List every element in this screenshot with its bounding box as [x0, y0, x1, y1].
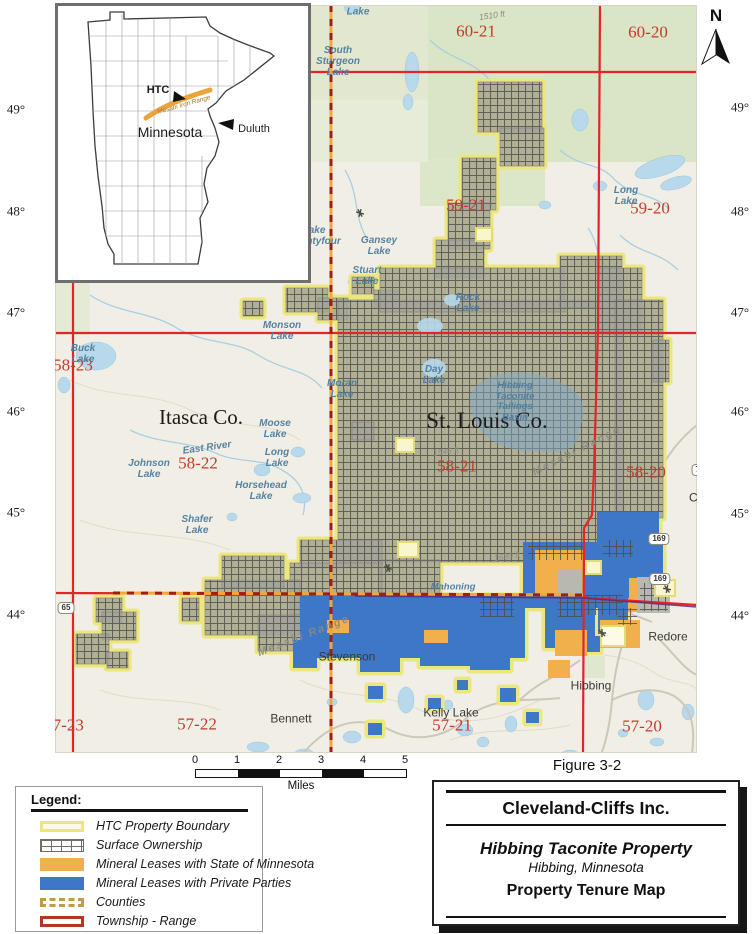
- figure-number-label: Figure 3-2: [432, 757, 742, 774]
- legend-header-rule: [31, 809, 248, 812]
- scale-tick: 4: [360, 754, 366, 766]
- scale-unit-label: Miles: [288, 780, 315, 792]
- scale-bar-segments: [195, 769, 407, 778]
- north-arrow-icon: [694, 26, 738, 66]
- latitude-label-right: 47°: [731, 306, 749, 321]
- latitude-label-left: 48°: [7, 205, 25, 220]
- latitude-label-right: 49°: [731, 101, 749, 116]
- legend-item-label: Mineral Leases with Private Parties: [96, 876, 291, 890]
- legend-box: Legend: HTC Property BoundarySurface Own…: [15, 786, 263, 932]
- legend-item-label: Surface Ownership: [96, 838, 202, 852]
- legend-item: Township - Range: [40, 912, 262, 931]
- inset-htc-label: HTC: [147, 84, 170, 96]
- title-block: Cleveland-Cliffs Inc. Hibbing Taconite P…: [432, 780, 740, 926]
- property-location: Hibbing, Minnesota: [434, 860, 738, 875]
- scale-bar-segment: [280, 770, 322, 777]
- legend-item: Surface Ownership: [40, 836, 262, 855]
- map-title: Property Tenure Map: [434, 882, 738, 900]
- scale-tick: 3: [318, 754, 324, 766]
- scale-bar-segment: [364, 770, 406, 777]
- title-rule-mid: [446, 824, 726, 827]
- latitude-label-left: 47°: [7, 306, 25, 321]
- scale-bar-segment: [322, 770, 364, 777]
- legend-item-label: Mineral Leases with State of Minnesota: [96, 857, 314, 871]
- latitude-label-right: 45°: [731, 507, 749, 522]
- legend-item-label: HTC Property Boundary: [96, 819, 229, 833]
- legend-item: Counties: [40, 893, 262, 912]
- minnesota-inset-map: HTC Mesabi Iron Range Minnesota Duluth: [55, 3, 311, 283]
- north-label: N: [694, 6, 738, 26]
- scale-tick: 1: [234, 754, 240, 766]
- legend-item-label: Township - Range: [96, 914, 196, 928]
- legend-swatch-township-range: [40, 916, 84, 927]
- legend-item: Mineral Leases with State of Minnesota: [40, 855, 262, 874]
- legend-swatch-counties: [40, 898, 84, 907]
- inset-city-label: Duluth: [238, 123, 270, 135]
- legend-swatch-surface: [40, 839, 84, 852]
- legend-swatch-private-lease: [40, 877, 84, 890]
- latitude-label-right: 44°: [731, 609, 749, 624]
- scale-bar-segment: [196, 770, 238, 777]
- legend-item-label: Counties: [96, 895, 145, 909]
- legend-swatch-boundary: [40, 821, 84, 832]
- duluth-arrow: [218, 119, 234, 130]
- scale-bar-segment: [238, 770, 280, 777]
- map-figure-page: 60-2160-2059-2159-2058-2358-2258-2158-20…: [0, 0, 755, 934]
- title-rule-bottom: [446, 916, 726, 919]
- legend-item: HTC Property Boundary: [40, 817, 262, 836]
- scale-tick: 0: [192, 754, 198, 766]
- inset-state-label: Minnesota: [138, 124, 203, 140]
- latitude-label-right: 48°: [731, 205, 749, 220]
- property-name: Hibbing Taconite Property: [434, 839, 738, 859]
- scale-tick: 2: [276, 754, 282, 766]
- legend-item: Mineral Leases with Private Parties: [40, 874, 262, 893]
- title-rule-top: [446, 790, 726, 793]
- scale-tick: 5: [402, 754, 408, 766]
- latitude-label-left: 44°: [7, 608, 25, 623]
- north-arrow: N: [694, 6, 738, 68]
- latitude-label-left: 49°: [7, 103, 25, 118]
- legend-header: Legend:: [31, 792, 262, 807]
- company-name: Cleveland-Cliffs Inc.: [434, 798, 738, 819]
- legend-swatch-state-lease: [40, 858, 84, 871]
- latitude-label-right: 46°: [731, 405, 749, 420]
- legend-items: HTC Property BoundarySurface OwnershipMi…: [16, 817, 262, 931]
- latitude-label-left: 45°: [7, 506, 25, 521]
- latitude-label-left: 46°: [7, 405, 25, 420]
